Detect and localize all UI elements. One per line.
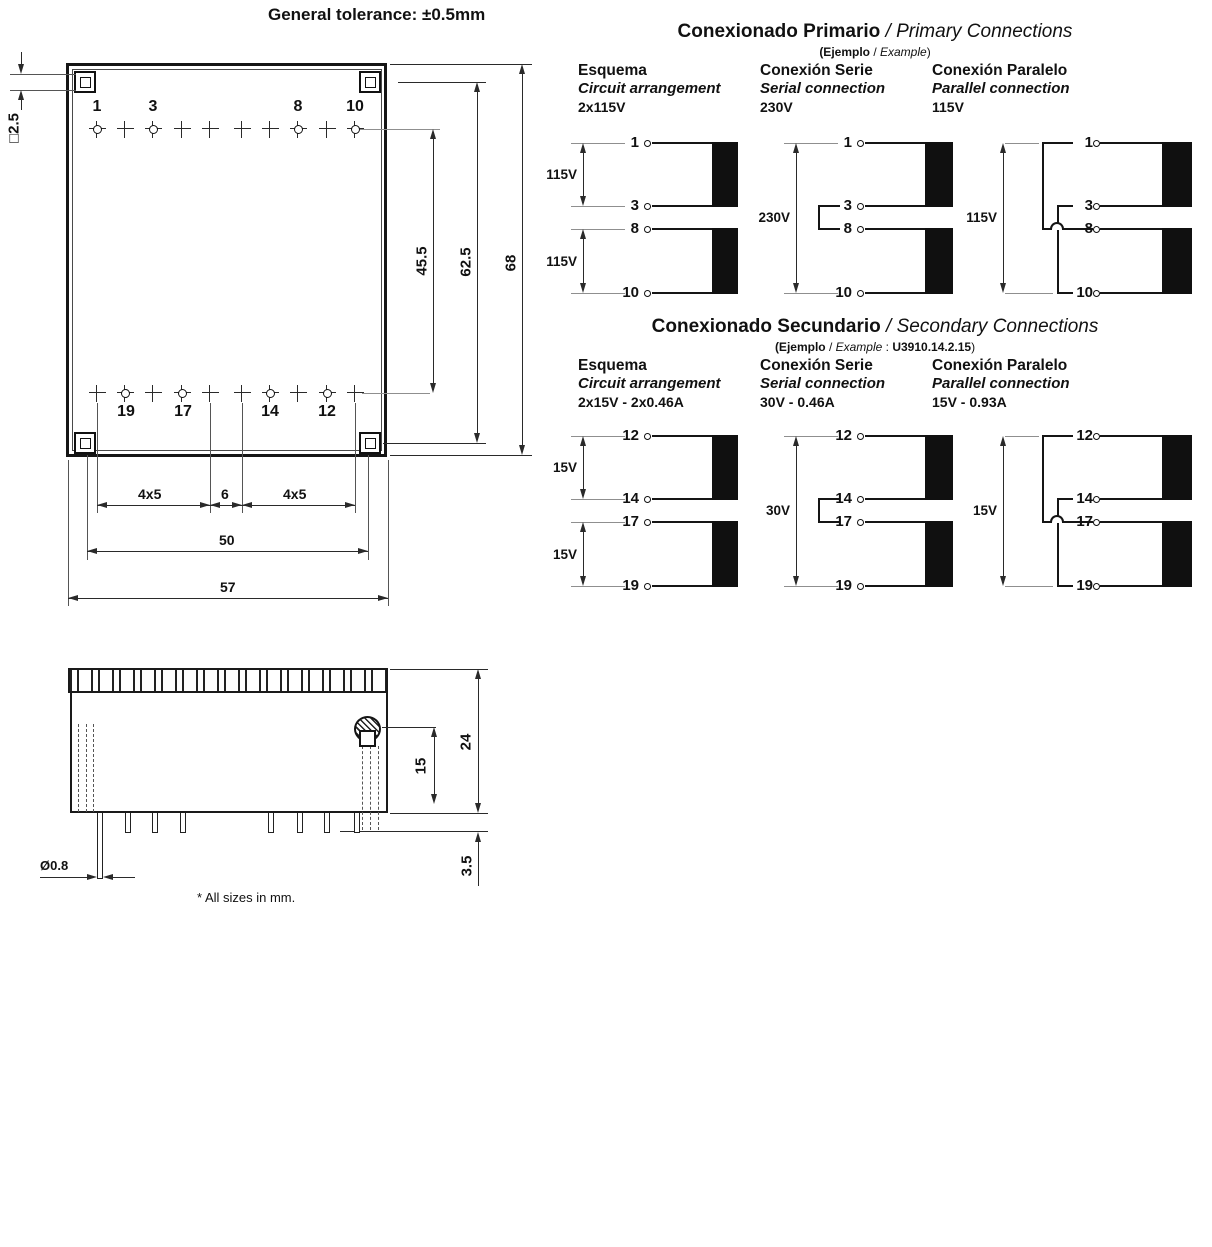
terminal-icon — [1093, 203, 1100, 210]
terminal-icon — [644, 583, 651, 590]
mount-hole-icon — [74, 432, 96, 454]
terminal-icon — [857, 226, 864, 233]
col-value: 230V — [760, 99, 793, 115]
dim-line — [87, 551, 368, 552]
arrow-icon — [475, 832, 481, 842]
wire — [652, 142, 712, 144]
pin-number: 1 — [605, 134, 639, 151]
pin-cross-icon — [262, 121, 279, 138]
col-subtitle: Serial connection — [760, 375, 885, 392]
pin-number: 12 — [818, 427, 852, 444]
pin-cross-icon — [145, 385, 162, 402]
dim-line — [796, 146, 797, 290]
terminal-icon — [1093, 140, 1100, 147]
terminal-icon — [1093, 496, 1100, 503]
pin-number: 8 — [605, 220, 639, 237]
mount-hole-icon — [74, 71, 96, 93]
arrow-icon — [97, 502, 107, 508]
dim-line — [21, 100, 22, 110]
cooling-ribs — [68, 668, 388, 693]
arrow-icon — [580, 229, 586, 239]
pin-cross-icon — [319, 121, 336, 138]
arrow-icon — [430, 383, 436, 393]
pin — [125, 813, 131, 833]
voltage-label: 30V — [726, 503, 790, 518]
col-title: Conexión Paralelo — [932, 62, 1067, 80]
arrow-icon — [430, 129, 436, 139]
arrow-icon — [200, 502, 210, 508]
winding-block — [712, 228, 738, 294]
terminal-icon — [644, 433, 651, 440]
leader-line — [1005, 293, 1053, 294]
arrow-icon — [358, 548, 368, 554]
pin-cross-icon — [234, 385, 251, 402]
col-value: 30V - 0.46A — [760, 394, 835, 410]
hidden-line — [93, 724, 94, 812]
wire — [652, 521, 712, 523]
dim-line — [68, 598, 388, 599]
leader-line — [390, 669, 488, 670]
pin — [354, 813, 360, 833]
pin-number: 17 — [170, 403, 196, 421]
example-sep: / — [870, 45, 880, 59]
terminal-icon — [857, 496, 864, 503]
dim-line — [433, 132, 434, 390]
pin-hole-icon — [178, 389, 187, 398]
col-title: Esquema — [578, 357, 647, 375]
arrow-icon — [793, 143, 799, 153]
voltage-label: 15V — [935, 503, 997, 518]
terminal-icon — [857, 290, 864, 297]
pin-cross-icon — [234, 121, 251, 138]
secondary-title-es: Conexionado Secundario — [652, 316, 881, 337]
wire — [1100, 435, 1162, 437]
pin-number: 3 — [143, 98, 163, 116]
pin-number: 3 — [818, 197, 852, 214]
dim-line — [583, 439, 584, 496]
dim-line — [478, 842, 479, 886]
winding-block — [712, 142, 738, 207]
arrow-icon — [519, 445, 525, 455]
pin-number: 19 — [1057, 577, 1093, 594]
wire — [652, 228, 712, 230]
general-tolerance-label: General tolerance: ±0.5mm — [268, 5, 518, 25]
pin-number: 19 — [113, 403, 139, 421]
terminal-icon — [644, 140, 651, 147]
leader-line — [1005, 143, 1039, 144]
arrow-icon — [378, 595, 388, 601]
winding-block — [712, 521, 738, 587]
dim-hole-span-label: 50 — [219, 532, 235, 548]
dim-line — [477, 85, 478, 437]
parallel-wire — [1042, 436, 1044, 523]
pin-number: 8 — [1057, 220, 1093, 237]
arrow-icon — [580, 143, 586, 153]
example-en: Example — [836, 340, 883, 354]
arrow-icon — [232, 502, 242, 508]
dim-line — [40, 877, 87, 878]
arrow-icon — [580, 196, 586, 206]
col-subtitle: Serial connection — [760, 80, 885, 97]
arrow-icon — [580, 489, 586, 499]
leader-line — [362, 393, 430, 394]
screw-nut-icon — [359, 730, 376, 747]
arrow-icon — [793, 576, 799, 586]
leader-line — [390, 813, 488, 814]
secondary-section-title: Conexionado Secundario / Secondary Conne… — [600, 316, 1150, 338]
terminal-icon — [857, 140, 864, 147]
leader-line — [383, 443, 486, 444]
dim-pitch-label: 4x5 — [283, 486, 306, 502]
winding-block — [925, 435, 953, 500]
wire — [865, 498, 925, 500]
primary-example-line: (Ejemplo / Example) — [620, 45, 1130, 59]
terminal-icon — [857, 433, 864, 440]
extension-line — [355, 403, 356, 513]
dim-line — [97, 505, 355, 506]
terminal-icon — [644, 290, 651, 297]
arrow-icon — [210, 502, 220, 508]
pin-number: 17 — [1057, 513, 1093, 530]
terminal-icon — [857, 203, 864, 210]
wire — [865, 228, 925, 230]
terminal-icon — [1093, 583, 1100, 590]
pin-cross-icon — [202, 385, 219, 402]
pin-hole-icon — [294, 125, 303, 134]
wire — [1100, 521, 1162, 523]
voltage-label: 115V — [515, 254, 577, 269]
col-value: 15V - 0.93A — [932, 394, 1007, 410]
secondary-title-en: / Secondary Connections — [886, 316, 1098, 337]
extension-line — [68, 460, 69, 606]
pin-hole-icon — [266, 389, 275, 398]
terminal-icon — [857, 583, 864, 590]
arrow-icon — [580, 522, 586, 532]
dim-line — [583, 525, 584, 583]
wire — [865, 585, 925, 587]
pin-number: 14 — [1057, 490, 1093, 507]
col-title: Conexión Paralelo — [932, 357, 1067, 375]
dim-pitch-label: 4x5 — [138, 486, 161, 502]
terminal-icon — [857, 519, 864, 526]
arrow-icon — [1000, 576, 1006, 586]
winding-block — [712, 435, 738, 500]
extension-line — [388, 460, 389, 606]
voltage-label: 15V — [515, 547, 577, 562]
pin-number: 1 — [818, 134, 852, 151]
terminal-icon — [644, 496, 651, 503]
extension-line — [242, 403, 243, 513]
wire — [865, 521, 925, 523]
dim-line — [583, 232, 584, 290]
arrow-icon — [793, 436, 799, 446]
wire — [652, 292, 712, 294]
arrow-icon — [519, 64, 525, 74]
pin-number: 14 — [257, 403, 283, 421]
arrow-icon — [431, 794, 437, 804]
dim-pin-length-label: 3.5 — [459, 856, 476, 877]
pin-hole-icon — [149, 125, 158, 134]
pin-number: 17 — [818, 513, 852, 530]
voltage-label: 115V — [515, 167, 577, 182]
wire — [865, 205, 925, 207]
example-open: (Ejemplo — [775, 340, 826, 354]
leader-line — [340, 831, 488, 832]
pin — [180, 813, 186, 833]
col-subtitle: Circuit arrangement — [578, 375, 721, 392]
dim-width-label: 57 — [220, 579, 236, 595]
pin-cross-icon — [117, 121, 134, 138]
wire — [865, 142, 925, 144]
col-value: 2x15V - 2x0.46A — [578, 394, 684, 410]
dim-line — [478, 672, 479, 810]
hidden-line — [370, 746, 371, 830]
winding-block — [925, 228, 953, 294]
pin-number: 1 — [1057, 134, 1093, 151]
pin-number: 3 — [605, 197, 639, 214]
dim-screw-pos-label: 15 — [413, 758, 430, 775]
terminal-icon — [644, 519, 651, 526]
example-close: ) — [971, 340, 975, 354]
wire — [1100, 142, 1162, 144]
primary-title-en: / Primary Connections — [886, 21, 1073, 42]
arrow-icon — [580, 436, 586, 446]
pin-number: 12 — [1057, 427, 1093, 444]
arrow-icon — [1000, 436, 1006, 446]
extension-line — [210, 403, 211, 513]
pin-hole-icon — [121, 389, 130, 398]
col-title: Esquema — [578, 62, 647, 80]
leader-line — [390, 455, 532, 456]
parallel-wire — [1042, 143, 1044, 230]
pin-number: 1 — [87, 98, 107, 116]
wire — [1100, 585, 1162, 587]
arrow-icon — [1000, 143, 1006, 153]
dim-pin-rows-label: 45.5 — [414, 246, 431, 275]
col-subtitle: Circuit arrangement — [578, 80, 721, 97]
arrow-icon — [580, 283, 586, 293]
leader-line — [382, 727, 436, 728]
arrow-icon — [18, 90, 24, 100]
leader-line — [390, 64, 532, 65]
wire — [1100, 228, 1162, 230]
wire — [865, 292, 925, 294]
arrow-icon — [431, 727, 437, 737]
example-sep: / — [826, 340, 836, 354]
pin-hole-icon — [323, 389, 332, 398]
pin-cross-icon — [290, 385, 307, 402]
arrow-icon — [474, 433, 480, 443]
terminal-icon — [1093, 433, 1100, 440]
terminal-icon — [1093, 226, 1100, 233]
arrow-icon — [87, 548, 97, 554]
long-pin — [97, 813, 103, 879]
pin-number: 10 — [1057, 284, 1093, 301]
pin-number: 14 — [605, 490, 639, 507]
winding-block — [1162, 435, 1192, 500]
extension-line — [87, 455, 88, 560]
example-code: U3910.14.2.15 — [892, 340, 971, 354]
leader-line — [1005, 586, 1053, 587]
col-title: Conexión Serie — [760, 357, 873, 375]
example-close: ) — [927, 45, 931, 59]
wire — [652, 498, 712, 500]
arrow-icon — [475, 669, 481, 679]
example-open: (Ejemplo — [819, 45, 870, 59]
primary-section-title: Conexionado Primario / Primary Connectio… — [620, 21, 1130, 43]
arrow-icon — [242, 502, 252, 508]
wire — [652, 205, 712, 207]
terminal-icon — [644, 226, 651, 233]
col-value: 2x115V — [578, 99, 626, 115]
arrow-icon — [474, 82, 480, 92]
col-title: Conexión Serie — [760, 62, 873, 80]
pin-number: 19 — [818, 577, 852, 594]
datasheet-page: General tolerance: ±0.5mm 1 3 8 10 — [0, 0, 1212, 1247]
extension-line — [97, 403, 98, 513]
hidden-line — [78, 724, 79, 812]
case-body — [70, 691, 388, 813]
dim-line — [1003, 146, 1004, 290]
secondary-example-line: (Ejemplo / Example : U3910.14.2.15) — [600, 340, 1150, 354]
wire — [1100, 498, 1162, 500]
primary-title-es: Conexionado Primario — [678, 21, 881, 42]
winding-block — [1162, 521, 1192, 587]
pin — [324, 813, 330, 833]
pin-number: 10 — [343, 98, 367, 116]
dim-pin-diameter-label: Ø0.8 — [40, 858, 68, 873]
hidden-line — [86, 724, 87, 812]
dim-line — [1003, 439, 1004, 583]
mount-hole-icon — [359, 71, 381, 93]
arrow-icon — [103, 874, 113, 880]
winding-block — [925, 521, 953, 587]
pin-number: 10 — [818, 284, 852, 301]
terminal-icon — [1093, 290, 1100, 297]
voltage-label: 115V — [935, 210, 997, 225]
hidden-line — [378, 746, 379, 830]
arrow-icon — [18, 64, 24, 74]
arrow-icon — [87, 874, 97, 880]
pin-number: 12 — [314, 403, 340, 421]
col-subtitle: Parallel connection — [932, 375, 1070, 392]
pin-number: 12 — [605, 427, 639, 444]
pin-number: 14 — [818, 490, 852, 507]
pin-number: 8 — [288, 98, 308, 116]
pin-cross-icon — [347, 385, 364, 402]
pin-cross-icon — [202, 121, 219, 138]
wire — [652, 435, 712, 437]
pin-number: 8 — [818, 220, 852, 237]
terminal-icon — [644, 203, 651, 210]
pin-hole-icon — [93, 125, 102, 134]
pin-number: 17 — [605, 513, 639, 530]
col-subtitle: Parallel connection — [932, 80, 1070, 97]
wire — [865, 435, 925, 437]
wire — [652, 585, 712, 587]
footnote: * All sizes in mm. — [197, 890, 295, 905]
hidden-line — [362, 746, 363, 830]
pin-number: 3 — [1057, 197, 1093, 214]
pin-hole-icon — [351, 125, 360, 134]
arrow-icon — [1000, 283, 1006, 293]
mount-hole-icon — [359, 432, 381, 454]
arrow-icon — [345, 502, 355, 508]
example-en: Example — [880, 45, 927, 59]
arrow-icon — [68, 595, 78, 601]
col-value: 115V — [932, 99, 964, 115]
terminal-icon — [1093, 519, 1100, 526]
extension-line — [368, 455, 369, 560]
arrow-icon — [580, 576, 586, 586]
voltage-label: 15V — [515, 460, 577, 475]
example-colon: : — [882, 340, 892, 354]
wire — [1100, 292, 1162, 294]
pin — [297, 813, 303, 833]
dim-line — [583, 146, 584, 203]
winding-block — [1162, 142, 1192, 207]
leader-line — [10, 74, 76, 75]
dim-square-label: □2.5 — [6, 113, 23, 143]
winding-block — [925, 142, 953, 207]
dim-line — [434, 730, 435, 801]
pin — [152, 813, 158, 833]
pin-number: 10 — [605, 284, 639, 301]
wire — [1100, 205, 1162, 207]
dim-line — [113, 877, 135, 878]
winding-block — [1162, 228, 1192, 294]
pin-cross-icon — [89, 385, 106, 402]
dim-total-height-label: 24 — [458, 734, 475, 751]
pin — [268, 813, 274, 833]
dim-gap-label: 6 — [221, 486, 229, 502]
dim-line — [796, 439, 797, 583]
leader-line — [1005, 436, 1039, 437]
pin-cross-icon — [174, 121, 191, 138]
voltage-label: 230V — [726, 210, 790, 225]
dim-holes-label: 62.5 — [458, 247, 475, 276]
leader-line — [360, 129, 440, 130]
arrow-icon — [475, 803, 481, 813]
arrow-icon — [793, 283, 799, 293]
pin-number: 19 — [605, 577, 639, 594]
